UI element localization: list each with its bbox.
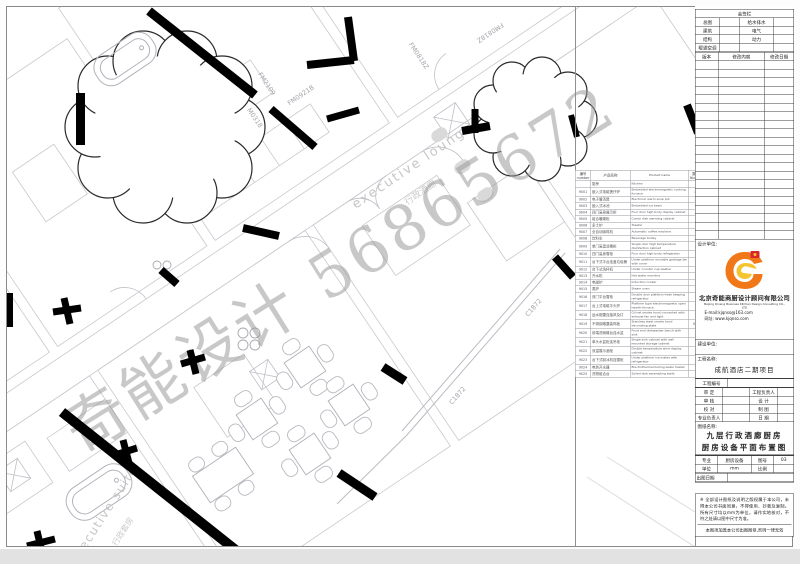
signoff-signature [774, 18, 794, 27]
qineng-logo-icon [721, 249, 769, 291]
col-header-product-cn: 产品名称 [591, 170, 631, 181]
equip-name-cn: 单头水盆柜连吊柜 [591, 337, 631, 346]
revision-date [765, 103, 794, 112]
revision-version [695, 78, 718, 87]
revision-version [695, 231, 718, 240]
project-no-table: 工程编号 [695, 379, 794, 388]
signoff-discipline: 暖通空调 [695, 43, 720, 52]
label-executive-suite: executive suite [67, 463, 141, 546]
role-value [778, 396, 794, 405]
cloud-bubble-left [65, 31, 265, 223]
revision-version [695, 61, 718, 70]
signoff-discipline [739, 43, 774, 52]
revision-empty-row [695, 188, 794, 197]
equip-name-cn: 洗物组合台 [591, 371, 631, 378]
revision-empty-row [695, 112, 794, 121]
role-value [723, 396, 750, 405]
equipment-row: 9009单门高温消毒柜Single door high temperature … [575, 242, 702, 251]
equip-no: 9009 [575, 242, 591, 251]
equip-name-en: Embedded electromagnetic cooking furnace [630, 187, 689, 196]
equip-name-cn: 单门高温消毒柜 [591, 242, 631, 251]
signoff-discipline: 结构 [695, 35, 720, 44]
equip-no: 9016 [575, 292, 591, 301]
revision-empty-row [695, 154, 794, 163]
revision-date [765, 163, 794, 172]
equipment-row: 9017台上式电磁平头炉Platform type electromagneti… [575, 301, 702, 310]
stamp-note: 本图须加盖本公司出图图章,否则一律无效 [698, 525, 792, 536]
meta-key: 专业 [695, 456, 718, 465]
equip-name-en: Double temperature wine display cabinet [630, 346, 689, 355]
revision-version [695, 154, 718, 163]
equipment-row: 9019不锈钢烟罩装饰板Stainless steel smoke hood d… [575, 319, 702, 328]
equipment-row: 9021单头水盆柜连吊柜Single sink cabinet with wal… [575, 337, 702, 346]
revision-date [765, 222, 794, 231]
drawing-name-line1: 九层行政酒廊厨房 [698, 430, 792, 442]
revision-empty-row [695, 103, 794, 112]
revision-version [695, 137, 718, 146]
equip-no: 9001 [575, 187, 591, 196]
equip-name-cn: 台上式电磁平头炉 [591, 301, 631, 310]
equipment-row: 9016双门平台雪柜Double door platform fresh kee… [575, 292, 702, 301]
revision-content [718, 86, 764, 95]
equip-name-en: Under platform movable garbage bin with … [630, 257, 689, 266]
role-label: 审 定 [695, 388, 723, 397]
date-label: 出图日期 [695, 473, 728, 482]
revision-version [695, 103, 718, 112]
roles-table: 审 定工程负责人审 核设 计校 对制 图专业负责人日 期 [695, 388, 794, 423]
revision-content [718, 120, 764, 129]
revision-date [765, 171, 794, 180]
revision-date [765, 180, 794, 189]
equipment-list-panel: 编号 number 产品名称 Product name 数量 Number 厨房… [575, 170, 696, 378]
project-no-value [728, 379, 794, 388]
date-value [728, 473, 794, 482]
equip-name-cn: 前端洗碗碟台连水盆 [591, 328, 631, 337]
revision-empty-row [695, 222, 794, 231]
equip-name-cn: 台下式制冰机连雪柜 [591, 355, 631, 364]
revision-date [765, 69, 794, 78]
project-name: 成航酒店二期项目 [698, 362, 792, 377]
role-value [723, 405, 750, 414]
signoff-signature [774, 26, 794, 35]
meta-row: 专业厨房设备图号03 [695, 456, 794, 465]
revision-date [765, 205, 794, 214]
tag: FM0818Z [475, 21, 505, 45]
revision-content [718, 231, 764, 240]
role-value [778, 388, 794, 397]
revision-version [695, 197, 718, 206]
role-value [778, 405, 794, 414]
revision-header: 版本 [695, 52, 718, 61]
revision-content [718, 222, 764, 231]
revision-empty-row [695, 61, 794, 70]
equip-no: 9020 [575, 328, 591, 337]
revision-content [718, 180, 764, 189]
revision-content [718, 171, 764, 180]
equip-name-cn: 双门平台雪柜 [591, 292, 631, 301]
copyright-note: ※ 全部设计图纸及说明之版权属于本公司，未得本公司书面同意，不得使用、抄袭及复制… [698, 495, 792, 525]
revision-version [695, 129, 718, 138]
company-name-en: Beijing Qineng Business Kitchen Design C… [701, 303, 787, 309]
company-website: 网址: www.kjqnso.com [705, 316, 792, 322]
revision-content [718, 205, 764, 214]
role-row: 审 核设 计 [695, 396, 794, 405]
col-header-number: 编号 number [575, 170, 591, 181]
revision-content [718, 214, 764, 223]
signoff-row: 暖通空调 [695, 43, 794, 52]
meta-row: 单位mm比例 [695, 464, 794, 473]
title-block: 会签栏 总图给水排水建筑电气结构动力暖通空调 版本 修改内容 修改日期 设计单位… [695, 6, 794, 537]
revision-content [718, 78, 764, 87]
revision-empty-row [695, 95, 794, 104]
signoff-signature [720, 18, 740, 27]
revision-date [765, 137, 794, 146]
revision-date [765, 146, 794, 155]
revision-header: 修改日期 [765, 52, 794, 61]
equip-name-cn: 台下式平台连盖垃圾桶 [591, 257, 631, 266]
tag: C1872 [448, 385, 468, 406]
signoff-signature [774, 43, 794, 52]
label-suite-cn: 行政套房 [110, 515, 136, 546]
equipment-row: 9001嵌入式电磁煲仔炉Embedded electromagnetic coo… [575, 187, 702, 196]
role-label: 日 期 [749, 413, 778, 422]
revision-empty-row [695, 171, 794, 180]
equip-no: 9019 [575, 319, 591, 328]
revision-date [765, 86, 794, 95]
revision-date [765, 112, 794, 121]
revision-content [718, 146, 764, 155]
signoff-discipline: 总图 [695, 18, 720, 27]
revision-content [718, 69, 764, 78]
revision-content [718, 103, 764, 112]
meta-value [774, 464, 794, 473]
revision-date [765, 95, 794, 104]
revision-version [695, 188, 718, 197]
role-label: 校 对 [695, 405, 723, 414]
equipment-row: 9022双温展示酒柜Double temperature wine displa… [575, 346, 702, 355]
equip-no: 9025 [575, 371, 591, 378]
role-row: 校 对制 图 [695, 405, 794, 414]
equip-name-en: Single door high temperature disinfectio… [630, 242, 689, 251]
revision-content [718, 188, 764, 197]
meta-key: 比例 [751, 464, 774, 473]
equip-no: 9023 [575, 355, 591, 364]
col-header-product-en: Product name [630, 170, 689, 181]
role-label: 设 计 [749, 396, 778, 405]
equip-name-en: Stainless steel smoke hood decorating pl… [630, 319, 689, 328]
client-label: 建设单位: [698, 341, 792, 348]
role-label: 专业负责人 [695, 413, 723, 422]
meta-key: 单位 [695, 464, 718, 473]
equip-name-en: Platform type electromagnetic open heart… [630, 301, 689, 310]
meta-value: 03 [774, 456, 794, 465]
signoff-table: 会签栏 总图给水排水建筑电气结构动力暖通空调 [695, 9, 794, 52]
revision-table: 版本 修改内容 修改日期 [695, 52, 794, 240]
role-value [723, 388, 750, 397]
revision-version [695, 171, 718, 180]
signoff-signature [720, 35, 740, 44]
revision-version [695, 146, 718, 155]
meta-key: 图号 [751, 456, 774, 465]
equip-no: 9022 [575, 346, 591, 355]
tag: FM2109 [256, 71, 277, 97]
role-label: 制 图 [749, 405, 778, 414]
revision-content [718, 112, 764, 121]
page-bottom-strip [0, 549, 800, 564]
revision-version [695, 120, 718, 129]
signoff-signature [720, 26, 740, 35]
equip-no: 9011 [575, 257, 591, 266]
equipment-row: 9018运水烟罩连抽风及灯Oil net smoke hood connecte… [575, 310, 702, 319]
signoff-row: 结构动力 [695, 35, 794, 44]
role-label: 审 核 [695, 396, 723, 405]
tag: FM0818Z [407, 41, 431, 71]
design-unit-section: 设计单位: 北京奇能商厨设计顾问有限公司 Beijing Qineng Busi… [695, 240, 794, 340]
role-row: 审 定工程负责人 [695, 388, 794, 397]
revision-header: 修改内容 [718, 52, 764, 61]
revision-version [695, 69, 718, 78]
date-table: 出图日期 [695, 473, 794, 483]
revision-content [718, 95, 764, 104]
signoff-discipline: 建筑 [695, 26, 720, 35]
meta-value: 厨房设备 [718, 456, 752, 465]
drawing-name-section: 图纸名称: 九层行政酒廊厨房 厨房设备平面布置图 [695, 422, 794, 455]
meta-table: 专业厨房设备图号03单位mm比例 [695, 455, 794, 473]
revision-version [695, 180, 718, 189]
revision-empty-row [695, 69, 794, 78]
revision-version [695, 112, 718, 121]
equip-name-cn: 双温展示酒柜 [591, 346, 631, 355]
revision-content [718, 163, 764, 172]
role-value [723, 413, 750, 422]
drawing-name-line2: 厨房设备平面布置图 [698, 442, 792, 454]
equip-name-cn: 嵌入式电磁煲仔炉 [591, 187, 631, 196]
revision-date [765, 214, 794, 223]
revision-empty-row [695, 205, 794, 214]
revision-empty-row [695, 78, 794, 87]
revision-empty-row [695, 120, 794, 129]
company-email: E-mail:kjqnso@163.com [705, 311, 792, 316]
revision-content [718, 137, 764, 146]
tag: FM0921B [286, 84, 316, 108]
equipment-row: 9011台下式平台连盖垃圾桶Under platform movable gar… [575, 257, 702, 266]
signoff-discipline: 动力 [739, 35, 774, 44]
role-label: 工程负责人 [749, 388, 778, 397]
signoff-row: 建筑电气 [695, 26, 794, 35]
equip-name-en: Oil net smoke hood connected with exhaus… [630, 310, 689, 319]
revision-version [695, 95, 718, 104]
equip-name-cn: 运水烟罩连抽风及灯 [591, 310, 631, 319]
role-value [778, 413, 794, 422]
equipment-row: 9023台下式制冰机连雪柜Under platform ice maker wi… [575, 355, 702, 364]
revision-date [765, 231, 794, 240]
revision-date [765, 120, 794, 129]
project-name-section: 工程名称: 成航酒店二期项目 [695, 355, 794, 379]
equip-no: 9018 [575, 310, 591, 319]
equipment-table: 编号 number 产品名称 Product name 数量 Number 厨房… [575, 170, 703, 378]
revision-date [765, 188, 794, 197]
revision-empty-row [695, 214, 794, 223]
equip-name-en: Double door platform fresh keeping refri… [630, 292, 689, 301]
notes-section: ※ 全部设计图纸及说明之版权属于本公司，未得本公司书面同意，不得使用、抄袭及复制… [695, 494, 794, 537]
signoff-title: 会签栏 [695, 9, 794, 18]
revision-empty-row [695, 137, 794, 146]
client-section: 建设单位: [695, 340, 794, 355]
revision-date [765, 129, 794, 138]
meta-value: mm [718, 464, 752, 473]
revision-empty-row [695, 197, 794, 206]
revision-empty-row [695, 146, 794, 155]
equip-no: 9021 [575, 337, 591, 346]
revision-version [695, 214, 718, 223]
role-row: 专业负责人日 期 [695, 413, 794, 422]
revision-content [718, 129, 764, 138]
revision-empty-row [695, 163, 794, 172]
revision-version [695, 86, 718, 95]
equip-name-en: Front end dishwasher bench with sink [630, 328, 689, 337]
tag: C1872 [524, 297, 544, 318]
revision-date [765, 154, 794, 163]
revision-empty-row [695, 86, 794, 95]
signoff-discipline: 给水排水 [739, 18, 774, 27]
drawing-sheet-page: executive lounge 行政酒廊 executive suite 行政… [0, 0, 800, 564]
equip-name-en: Soiled dish assembling table [630, 371, 689, 378]
revision-empty-row [695, 180, 794, 189]
revision-empty-row [695, 231, 794, 240]
project-no-label: 工程编号 [695, 379, 728, 388]
equip-name-en: Single sink cabinet with wall mounted st… [630, 337, 689, 346]
signoff-row: 总图给水排水 [695, 18, 794, 27]
revision-version [695, 205, 718, 214]
revision-content [718, 61, 764, 70]
revision-empty-row [695, 129, 794, 138]
revision-content [718, 154, 764, 163]
revision-date [765, 197, 794, 206]
equip-name-en: Under platform ice maker with refrigerat… [630, 355, 689, 364]
revision-date [765, 78, 794, 87]
company-logo [698, 247, 792, 292]
signoff-discipline: 电气 [739, 26, 774, 35]
equip-no: 9017 [575, 301, 591, 310]
revision-version [695, 163, 718, 172]
signoff-signature [720, 43, 740, 52]
equipment-row: 9020前端洗碗碟台连水盆Front end dishwasher bench … [575, 328, 702, 337]
equipment-row: 9025洗物组合台Soiled dish assembling table1 [575, 371, 702, 378]
signoff-signature [774, 35, 794, 44]
revision-content [718, 197, 764, 206]
company-name-cn: 北京奇能商厨设计顾问有限公司 [698, 293, 792, 303]
equip-name-cn: 不锈钢烟罩装饰板 [591, 319, 631, 328]
revision-version [695, 222, 718, 231]
revision-date [765, 61, 794, 70]
